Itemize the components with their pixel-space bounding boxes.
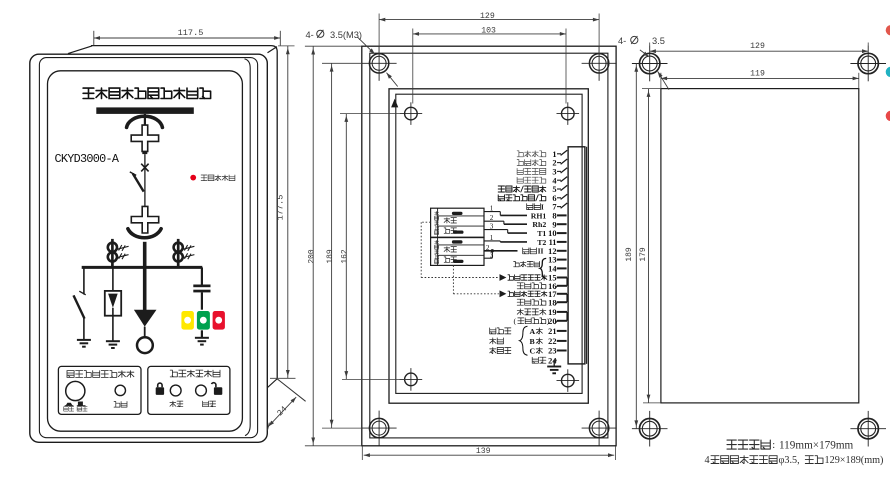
- svg-text:4-: 4-: [618, 36, 626, 46]
- svg-text:179: 179: [639, 247, 648, 261]
- svg-text::: :: [772, 440, 775, 451]
- svg-text:Rh2: Rh2: [532, 220, 546, 229]
- svg-text:1: 1: [490, 205, 494, 213]
- svg-text:B: B: [530, 337, 535, 346]
- svg-text:24: 24: [548, 356, 557, 365]
- svg-text:5: 5: [552, 185, 556, 194]
- svg-text:2: 2: [490, 214, 494, 222]
- svg-text:A: A: [530, 327, 536, 336]
- svg-text:3.5: 3.5: [652, 36, 665, 46]
- svg-text:13: 13: [548, 256, 556, 265]
- svg-text:I: I: [541, 202, 544, 211]
- svg-text:C: C: [530, 346, 536, 355]
- svg-text:CKYD3000-A: CKYD3000-A: [55, 152, 120, 166]
- svg-text:RH1: RH1: [531, 211, 547, 220]
- svg-text:129: 129: [480, 12, 495, 21]
- svg-text:23: 23: [548, 347, 556, 356]
- svg-text:T1: T1: [537, 229, 546, 238]
- svg-text:117.5: 117.5: [178, 28, 204, 38]
- svg-text:4: 4: [705, 455, 710, 466]
- svg-text:6: 6: [552, 194, 556, 203]
- svg-text:(: (: [514, 316, 517, 325]
- svg-text:162: 162: [341, 249, 350, 263]
- svg-text:22: 22: [548, 337, 556, 346]
- svg-text:129×189(mm): 129×189(mm): [825, 455, 884, 466]
- svg-text:14: 14: [548, 265, 557, 274]
- svg-text:11: 11: [549, 238, 557, 247]
- svg-text:T2: T2: [537, 238, 546, 247]
- svg-text:189: 189: [326, 249, 335, 263]
- svg-text:119mm×179mm: 119mm×179mm: [779, 439, 854, 451]
- svg-text:7: 7: [552, 203, 556, 212]
- svg-text:II: II: [538, 247, 544, 256]
- svg-text:10: 10: [548, 229, 556, 238]
- svg-text:8: 8: [552, 212, 556, 221]
- svg-text:21: 21: [548, 327, 556, 336]
- svg-text:3: 3: [552, 168, 556, 177]
- svg-text:φ3.5,: φ3.5,: [779, 455, 800, 466]
- svg-text:3: 3: [490, 251, 494, 259]
- svg-text:18: 18: [548, 298, 556, 307]
- svg-text:177.5: 177.5: [276, 195, 286, 221]
- svg-text:12: 12: [548, 247, 556, 256]
- svg-text:3: 3: [490, 223, 494, 231]
- svg-text:3.5(M3): 3.5(M3): [330, 30, 362, 40]
- svg-text:189: 189: [625, 247, 634, 261]
- svg-text:200: 200: [307, 249, 316, 263]
- svg-text:): ): [547, 316, 550, 325]
- svg-text:19: 19: [548, 308, 556, 317]
- svg-text:1: 1: [552, 150, 556, 159]
- svg-text:119: 119: [750, 70, 765, 79]
- svg-text:4-: 4-: [306, 30, 314, 40]
- svg-text:2: 2: [552, 159, 556, 168]
- svg-text:103: 103: [481, 26, 496, 35]
- svg-text:139: 139: [476, 447, 491, 456]
- svg-text:129: 129: [750, 42, 765, 51]
- svg-text:9: 9: [552, 220, 556, 229]
- svg-text:20: 20: [548, 317, 556, 326]
- svg-text:1: 1: [490, 234, 494, 242]
